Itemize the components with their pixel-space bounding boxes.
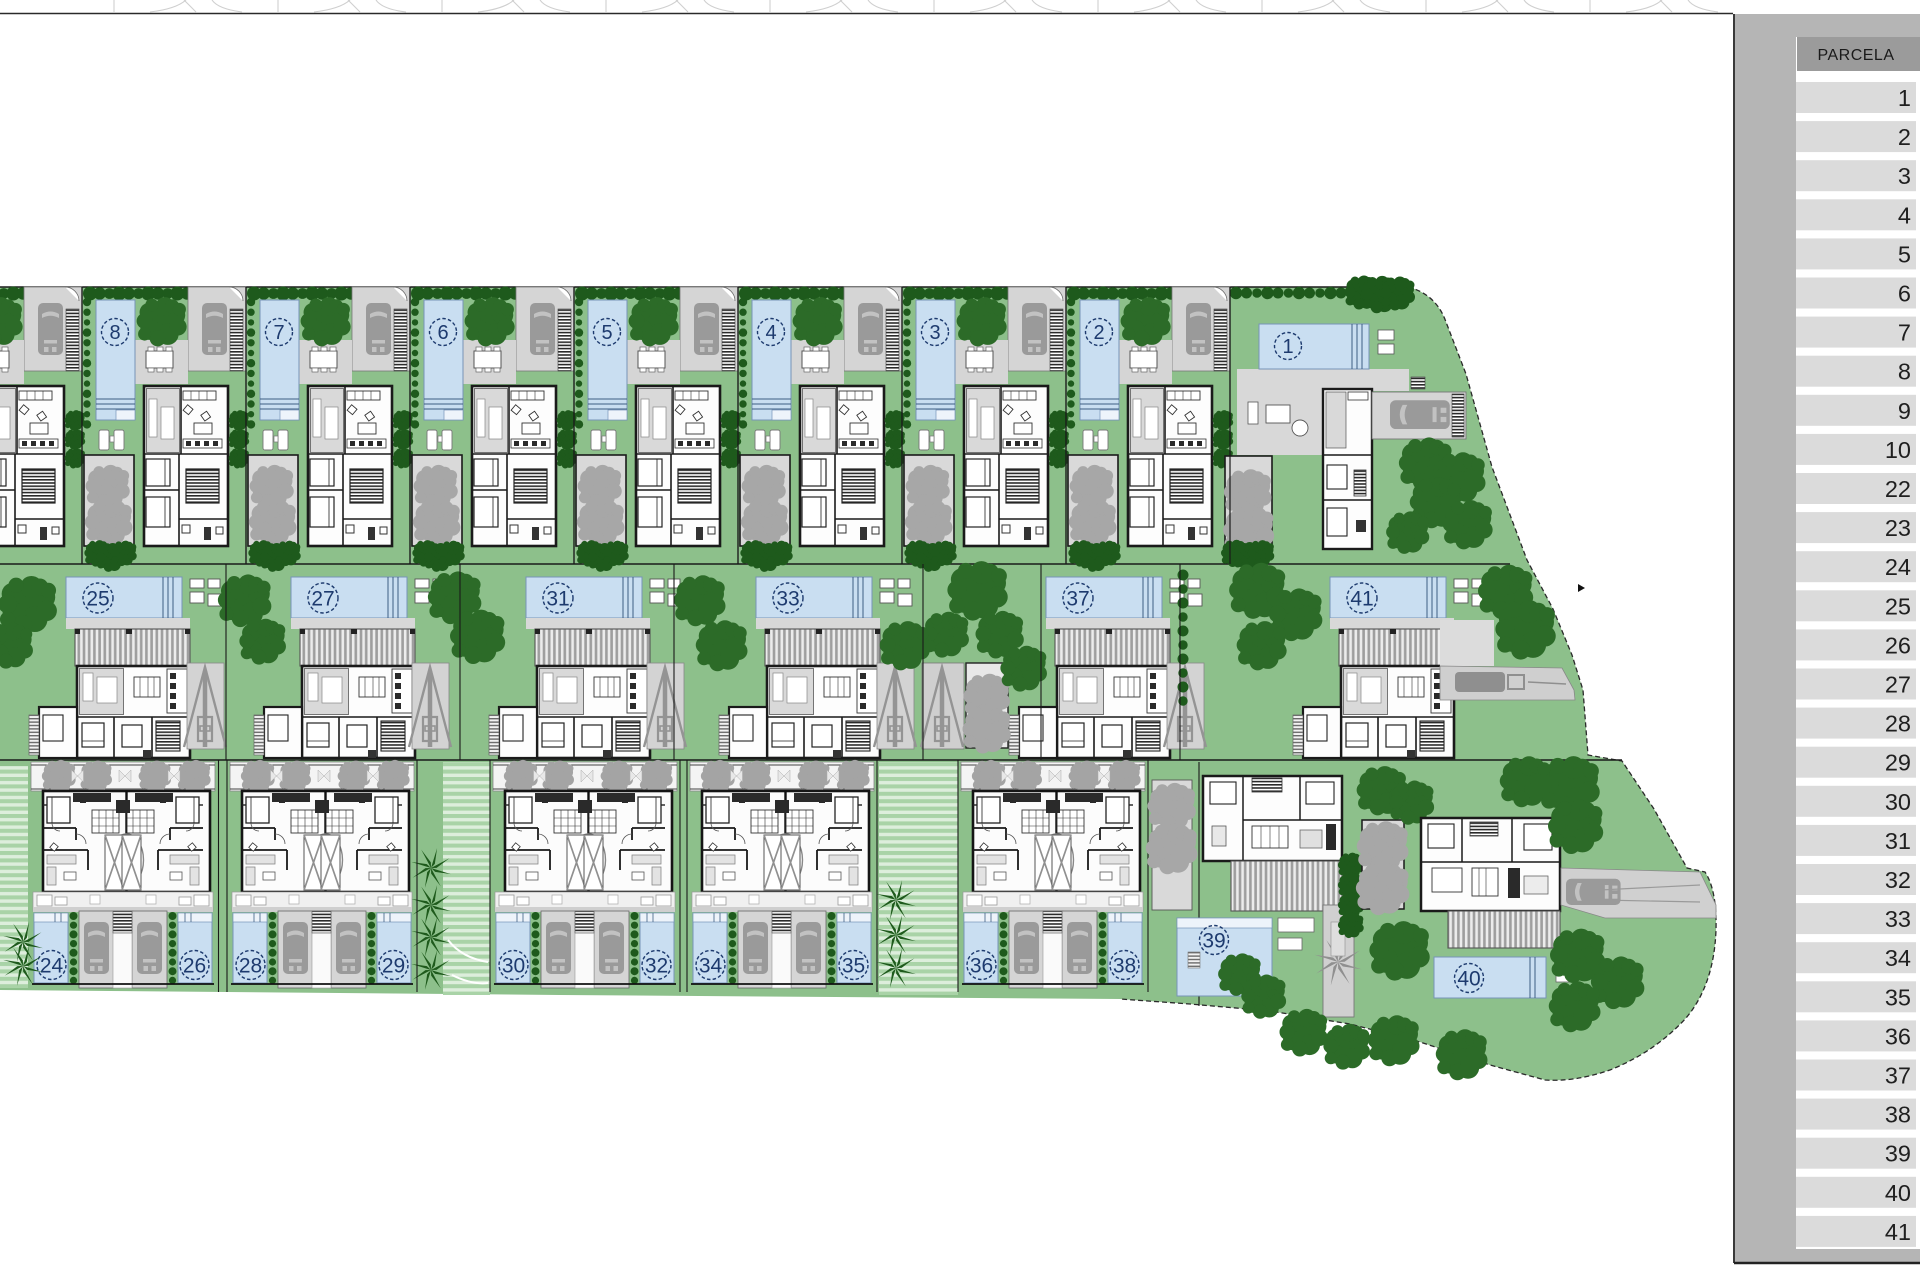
svg-text:31: 31 (546, 588, 569, 611)
svg-text:PARCELA: PARCELA (1817, 47, 1894, 64)
svg-text:37: 37 (1885, 1063, 1911, 1089)
svg-text:33: 33 (1885, 906, 1911, 932)
svg-text:26: 26 (183, 955, 206, 978)
svg-text:41: 41 (1350, 588, 1373, 611)
svg-text:35: 35 (842, 955, 865, 978)
svg-text:26: 26 (1885, 632, 1911, 658)
svg-text:35: 35 (1885, 984, 1911, 1010)
svg-text:32: 32 (1885, 867, 1911, 893)
svg-text:28: 28 (239, 955, 262, 978)
svg-text:27: 27 (1885, 672, 1911, 698)
svg-text:30: 30 (502, 955, 525, 978)
svg-text:6: 6 (1898, 281, 1911, 307)
svg-text:3: 3 (1898, 163, 1911, 189)
svg-text:1: 1 (1282, 336, 1293, 358)
svg-text:30: 30 (1885, 789, 1911, 815)
svg-text:4: 4 (1898, 202, 1911, 228)
svg-text:38: 38 (1885, 1102, 1911, 1128)
svg-text:28: 28 (1885, 711, 1911, 737)
svg-text:10: 10 (1885, 437, 1911, 463)
svg-text:8: 8 (1898, 359, 1911, 385)
svg-text:5: 5 (601, 322, 612, 344)
svg-text:6: 6 (437, 322, 448, 344)
svg-text:7: 7 (273, 322, 284, 344)
svg-text:5: 5 (1898, 241, 1911, 267)
svg-text:24: 24 (40, 955, 64, 978)
svg-text:22: 22 (1885, 476, 1911, 502)
svg-text:41: 41 (1885, 1219, 1911, 1245)
svg-text:7: 7 (1898, 320, 1911, 346)
svg-text:25: 25 (1885, 593, 1911, 619)
svg-text:40: 40 (1885, 1180, 1911, 1206)
svg-text:2: 2 (1093, 322, 1104, 344)
svg-text:24: 24 (1885, 554, 1911, 580)
svg-text:34: 34 (1885, 945, 1911, 971)
svg-text:36: 36 (1885, 1023, 1911, 1049)
svg-text:38: 38 (1113, 955, 1136, 978)
svg-text:32: 32 (645, 955, 668, 978)
svg-text:39: 39 (1885, 1141, 1911, 1167)
svg-text:33: 33 (776, 588, 799, 611)
svg-text:40: 40 (1457, 968, 1480, 991)
svg-text:2: 2 (1898, 124, 1911, 150)
svg-text:31: 31 (1885, 828, 1911, 854)
svg-text:34: 34 (699, 955, 723, 978)
svg-text:3: 3 (929, 322, 940, 344)
svg-text:27: 27 (311, 588, 334, 611)
svg-text:36: 36 (970, 955, 993, 978)
svg-text:8: 8 (109, 322, 120, 344)
svg-text:9: 9 (1898, 398, 1911, 424)
svg-text:29: 29 (1885, 750, 1911, 776)
svg-text:37: 37 (1066, 588, 1089, 611)
svg-text:39: 39 (1202, 930, 1225, 953)
svg-text:1: 1 (1898, 85, 1911, 111)
svg-text:29: 29 (382, 955, 405, 978)
svg-text:23: 23 (1885, 515, 1911, 541)
svg-text:4: 4 (765, 322, 776, 344)
svg-text:25: 25 (86, 588, 109, 611)
